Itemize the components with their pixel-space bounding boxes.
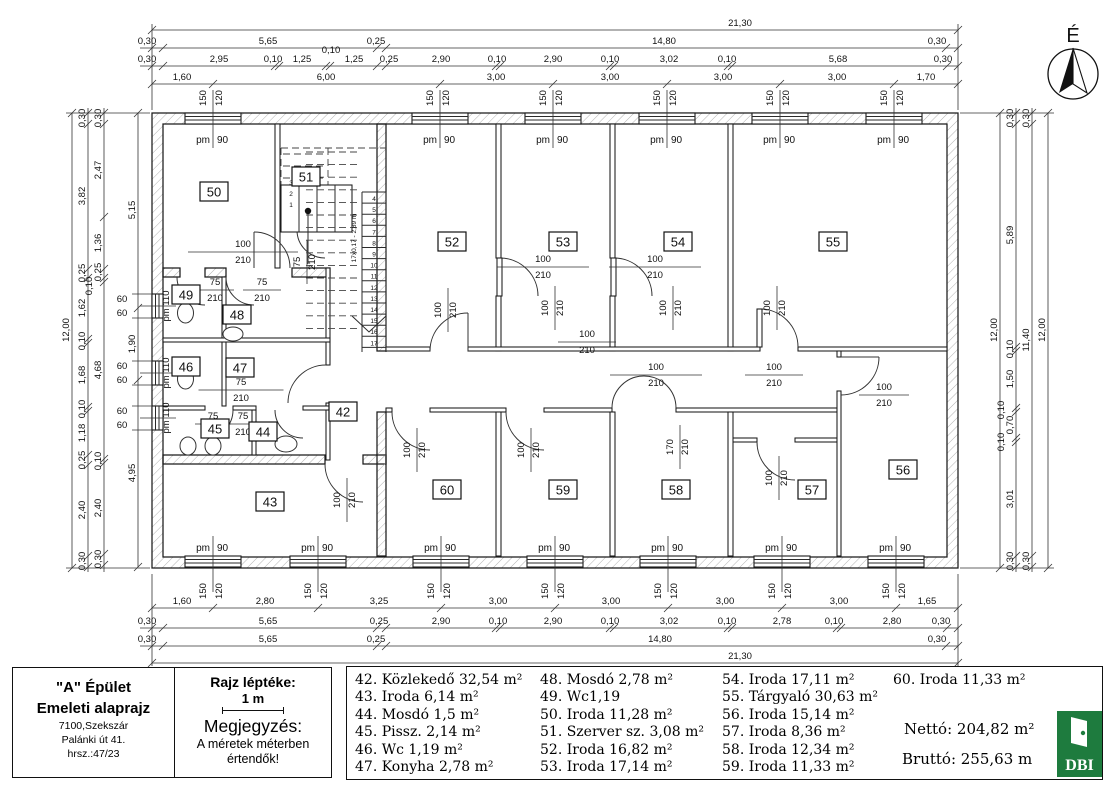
window-spec: 150 xyxy=(540,583,551,599)
dim-label: 0,10 xyxy=(996,433,1007,452)
door-width-label: 100 xyxy=(332,492,343,508)
dim-label: 2,40 xyxy=(77,501,88,520)
door-height-label: 210 xyxy=(647,270,663,281)
dim-label: 4,68 xyxy=(93,361,104,380)
window-sill-label: pm xyxy=(424,543,438,554)
window-sill-label: pm xyxy=(423,135,437,146)
door-width-label: 100 xyxy=(579,329,595,340)
dim-label: 4,95 xyxy=(127,464,138,483)
note-line1: A méretek méterben xyxy=(175,737,331,752)
dim-label: 0,30 xyxy=(932,616,951,627)
legend-item: 50. Iroda 11,28 m² xyxy=(540,707,704,724)
dim-label: 6,00 xyxy=(317,72,336,83)
legend-item: 56. Iroda 15,14 m² xyxy=(722,707,878,724)
window-spec: 120 xyxy=(668,90,679,106)
stair-step-number: 8 xyxy=(372,240,376,247)
window-spec: 120 xyxy=(669,583,680,599)
legend-item: 44. Mosdó 1,5 m² xyxy=(355,707,522,724)
sink xyxy=(275,436,297,452)
dim-label: 0,10 xyxy=(601,54,620,65)
stair-start-dot xyxy=(305,208,311,214)
window-sill-label: 90 xyxy=(217,135,229,146)
dim-label: 0,25 xyxy=(380,54,399,65)
legend-item: 42. Közlekedő 32,54 m² xyxy=(355,672,522,689)
drawing-name: Emeleti alaprajz xyxy=(13,698,174,719)
toilet-bowl xyxy=(178,303,194,323)
dim-label: 11,40 xyxy=(1021,328,1032,351)
dim-label: 1,65 xyxy=(918,596,937,607)
window-spec: 150 xyxy=(881,583,892,599)
dim-label: 3,02 xyxy=(660,616,679,627)
dim-label: 12,00 xyxy=(989,318,1000,342)
window-sill-label: 90 xyxy=(671,135,683,146)
gross-area: Bruttó: 255,63 m xyxy=(902,750,1032,768)
dim-label: 0,30 xyxy=(138,36,157,47)
dim-label: 2,90 xyxy=(544,616,563,627)
window-sill-label: 90 xyxy=(559,543,571,554)
sink xyxy=(223,327,243,341)
door-height-label: 210 xyxy=(777,300,788,316)
address-street: Palánki út 41. xyxy=(13,733,174,747)
dim-label: 12,00 xyxy=(1037,318,1048,342)
window-spec: 150 xyxy=(425,90,436,106)
dim-label: 0,10 xyxy=(322,45,341,56)
dim-label: 0,25 xyxy=(367,634,386,645)
door-width-label: 75 xyxy=(292,257,303,268)
room-number-53: 53 xyxy=(556,235,570,250)
dim-label: 0,30 xyxy=(77,552,88,571)
dim-label: 0,30 xyxy=(138,616,157,627)
legend-item: 52. Iroda 16,82 m² xyxy=(540,742,704,759)
dim-label: 2,90 xyxy=(544,54,563,65)
stair-step-number: 14 xyxy=(370,307,378,314)
dim-label: 0,10 xyxy=(77,332,88,351)
dim-label: 2,80 xyxy=(256,596,275,607)
parcel-number: hrsz.:47/23 xyxy=(13,747,174,761)
door-width-label: 100 xyxy=(764,470,775,486)
dbi-logo: DBI xyxy=(1057,711,1102,777)
room-number-56: 56 xyxy=(896,463,910,478)
address-city: 7100,Szekszár xyxy=(13,719,174,733)
window-sill-label: pm xyxy=(651,543,665,554)
door-width-label: 100 xyxy=(658,300,669,316)
door-height-label: 210 xyxy=(531,442,542,458)
dim-label: 0,10 xyxy=(264,54,283,65)
stair-step-number: 13 xyxy=(370,296,378,303)
door-height-label: 210 xyxy=(448,302,459,318)
dim-label: 0,30 xyxy=(1005,552,1016,571)
window-spec: 120 xyxy=(895,90,906,106)
window-sill-label: pm xyxy=(879,543,893,554)
door-width-label: 100 xyxy=(516,442,527,458)
window-sill-label: pm xyxy=(301,543,315,554)
legend-item: 45. Pissz. 2,14 m² xyxy=(355,724,522,741)
dim-label: 2,40 xyxy=(93,499,104,518)
window-sill-label: 90 xyxy=(445,543,457,554)
dim-label: 0,30 xyxy=(1021,552,1032,571)
window-spec: 150 xyxy=(198,90,209,106)
room-number-44: 44 xyxy=(256,425,270,440)
room-number-43: 43 xyxy=(263,495,277,510)
door-width-label: 170 xyxy=(665,439,676,455)
stair-step-number: 17 xyxy=(370,340,378,347)
room-number-51: 51 xyxy=(299,170,313,185)
legend-item: 59. Iroda 11,33 m² xyxy=(722,759,878,776)
stair-note: 17x0,17 - 2,89 m xyxy=(351,214,358,263)
stair-step-number: 10 xyxy=(370,263,378,270)
dim-label: 0,30 xyxy=(93,550,104,569)
door-width-label: 75 xyxy=(210,277,221,288)
dim-label: 0,30 xyxy=(928,36,947,47)
window-spec: 120 xyxy=(781,90,792,106)
room-number-46: 46 xyxy=(179,360,193,375)
legend-item: 49. Wc1,19 xyxy=(540,689,704,706)
dim-label: 5,68 xyxy=(829,54,848,65)
room-number-50: 50 xyxy=(207,185,221,200)
dim-label: 2,90 xyxy=(432,54,451,65)
window-spec: 150 xyxy=(652,90,663,106)
door-height-label: 210 xyxy=(417,442,428,458)
dim-label: 5,65 xyxy=(259,616,278,627)
window-spec: 120 xyxy=(783,583,794,599)
dim-label: 0,10 xyxy=(718,616,737,627)
window-sill-label: pm xyxy=(765,543,779,554)
legend-column-3: 54. Iroda 17,11 m²55. Tárgyaló 30,63 m²5… xyxy=(722,672,878,776)
building-name: "A" Épület xyxy=(13,677,174,698)
dim-label: 1,68 xyxy=(77,366,88,385)
dim-label: 1,25 xyxy=(293,54,312,65)
dim-label: 1,62 xyxy=(77,299,88,318)
door-height-label: 210 xyxy=(307,254,318,270)
dim-label: 1,50 xyxy=(1005,370,1016,389)
dim-label: 5,65 xyxy=(259,36,278,47)
dim-label: 0,10 xyxy=(489,616,508,627)
dim-label: 3,00 xyxy=(602,596,621,607)
dim-label: 3,00 xyxy=(487,72,506,83)
legend-item: 55. Tárgyaló 30,63 m² xyxy=(722,689,878,706)
dim-label: 14,80 xyxy=(652,36,676,47)
dim-label: 1,60 xyxy=(173,596,192,607)
dim-label: 3,25 xyxy=(370,596,389,607)
stair-step-number: 4 xyxy=(372,196,376,203)
window-spec: 150 xyxy=(765,90,776,106)
urinal xyxy=(205,437,221,455)
dim-label: 0,10 xyxy=(93,452,104,471)
window-spec: 150 xyxy=(426,583,437,599)
door-height-label: 210 xyxy=(235,255,251,266)
title-block-project: "A" Épület Emeleti alaprajz 7100,Szekszá… xyxy=(13,668,175,777)
stair-step-number: 6 xyxy=(372,218,376,225)
window-sill-label: pm 110 xyxy=(161,291,172,322)
window-sill-label: 90 xyxy=(444,135,456,146)
window-sill-label: pm xyxy=(877,135,891,146)
legend-item: 47. Konyha 2,78 m² xyxy=(355,759,522,776)
room-number-58: 58 xyxy=(669,483,683,498)
dim-label: 5,15 xyxy=(127,201,138,220)
legend-item: 53. Iroda 17,14 m² xyxy=(540,759,704,776)
door-width-label: 75 xyxy=(238,411,249,422)
window-sill-label: pm xyxy=(538,543,552,554)
window-spec: 150 xyxy=(879,90,890,106)
stair-step-number: 9 xyxy=(372,252,376,259)
window-width-label: 60 xyxy=(117,294,128,305)
legend-column-1: 42. Közlekedő 32,54 m²43. Iroda 6,14 m²4… xyxy=(355,672,522,776)
dbi-logo-text: DBI xyxy=(1057,757,1102,775)
door-width-label: 100 xyxy=(402,442,413,458)
north-label: É xyxy=(1066,24,1079,47)
window-sill-label: pm xyxy=(650,135,664,146)
stair-step-number: 2 xyxy=(289,191,293,198)
urinal xyxy=(180,437,196,455)
dim-label: 0,25 xyxy=(370,616,389,627)
room-number-42: 42 xyxy=(336,405,350,420)
door-height-label: 210 xyxy=(555,300,566,316)
door-height-label: 210 xyxy=(254,293,270,304)
dim-label: 3,00 xyxy=(828,72,847,83)
window-sill-label: 90 xyxy=(900,543,912,554)
room-number-45: 45 xyxy=(208,422,222,437)
dim-label: 0,30 xyxy=(138,54,157,65)
note-title: Megjegyzés: xyxy=(175,716,331,737)
stair-step-number: 12 xyxy=(370,285,378,292)
dim-label: 2,90 xyxy=(432,616,451,627)
dim-label: 2,80 xyxy=(883,616,902,627)
legend-column-4: 60. Iroda 11,33 m² xyxy=(893,672,1026,689)
dim-label: 5,89 xyxy=(1005,226,1016,245)
window-width-label: 60 xyxy=(117,420,128,431)
room-number-54: 54 xyxy=(671,235,685,250)
window-sill-label: pm xyxy=(196,543,210,554)
dim-label: 1,90 xyxy=(127,335,138,354)
door-width-label: 100 xyxy=(766,362,782,373)
window-spec: 120 xyxy=(214,90,225,106)
stair-step-number: 5 xyxy=(372,207,376,214)
window-sill-label: 90 xyxy=(784,135,796,146)
scale-bar xyxy=(222,707,284,714)
dim-label: 1,18 xyxy=(77,424,88,443)
window-width-label: 60 xyxy=(117,308,128,319)
dim-label: 0,25 xyxy=(77,451,88,470)
legend-item: 51. Szerver sz. 3,08 m² xyxy=(540,724,704,741)
title-block-scale: Rajz léptéke: 1 m Megjegyzés: A méretek … xyxy=(175,668,331,777)
door-width-label: 100 xyxy=(433,302,444,318)
window-spec: 150 xyxy=(538,90,549,106)
window-spec: 120 xyxy=(442,583,453,599)
door-width-label: 75 xyxy=(236,377,247,388)
dim-label: 1,70 xyxy=(917,72,936,83)
dim-label: 0,25 xyxy=(367,36,386,47)
door-height-label: 210 xyxy=(876,398,892,409)
north-compass: É xyxy=(1048,24,1098,99)
dim-label: 0,10 xyxy=(601,616,620,627)
window-spec: 120 xyxy=(214,583,225,599)
dim-label: 0,30 xyxy=(77,109,88,128)
dim-label: 0,10 xyxy=(488,54,507,65)
dim-label: 0,30 xyxy=(1021,109,1032,128)
door-height-label: 210 xyxy=(535,270,551,281)
dim-label: 0,30 xyxy=(928,634,947,645)
door-width-label: 100 xyxy=(540,300,551,316)
window-sill-label: 90 xyxy=(557,135,569,146)
scale-value: 1 m xyxy=(175,691,331,706)
window-sill-label: pm xyxy=(196,135,210,146)
dim-label: 0,70 xyxy=(1005,416,1016,435)
window-spec: 150 xyxy=(653,583,664,599)
window-sill-label: pm 110 xyxy=(161,403,172,434)
stair-step-number: 7 xyxy=(372,229,376,236)
room-number-52: 52 xyxy=(445,235,459,250)
dim-label: 1,36 xyxy=(93,234,104,253)
dim-label: 3,00 xyxy=(601,72,620,83)
window-sill-label: 90 xyxy=(898,135,910,146)
window-spec: 150 xyxy=(198,583,209,599)
dim-label: 3,02 xyxy=(660,54,679,65)
window-sill-label: pm xyxy=(763,135,777,146)
window-width-label: 60 xyxy=(117,406,128,417)
net-area: Nettó: 204,82 m² xyxy=(904,720,1034,738)
door-height-label: 210 xyxy=(779,470,790,486)
door-width-label: 75 xyxy=(257,277,268,288)
dim-label: 0,30 xyxy=(93,109,104,128)
legend-item: 54. Iroda 17,11 m² xyxy=(722,672,878,689)
door-width-label: 100 xyxy=(876,382,892,393)
door-width-label: 100 xyxy=(647,254,663,265)
room-legend: 42. Közlekedő 32,54 m²43. Iroda 6,14 m²4… xyxy=(346,666,1103,780)
legend-item: 43. Iroda 6,14 m² xyxy=(355,689,522,706)
window-sill-label: pm 110 xyxy=(161,358,172,389)
dim-label: 0,30 xyxy=(138,634,157,645)
room-number-55: 55 xyxy=(826,235,840,250)
dim-label: 0,10 xyxy=(84,277,95,296)
room-number-60: 60 xyxy=(440,483,454,498)
room-number-48: 48 xyxy=(230,308,244,323)
dim-label: 3,00 xyxy=(716,596,735,607)
legend-item: 48. Mosdó 2,78 m² xyxy=(540,672,704,689)
legend-item: 58. Iroda 12,34 m² xyxy=(722,742,878,759)
dim-label: 14,80 xyxy=(648,634,672,645)
title-block: "A" Épület Emeleti alaprajz 7100,Szekszá… xyxy=(12,667,332,778)
dim-label: 3,00 xyxy=(489,596,508,607)
dim-label: 0,10 xyxy=(825,616,844,627)
door-height-label: 210 xyxy=(648,378,664,389)
dim-label: 2,95 xyxy=(210,54,229,65)
floor-plan-page: É 21,300,305,650,2514,800,300,302,950,10… xyxy=(0,0,1111,786)
dim-label: 2,78 xyxy=(773,616,792,627)
window-spec: 120 xyxy=(319,583,330,599)
dim-label: 21,30 xyxy=(728,18,752,29)
room-number-59: 59 xyxy=(556,483,570,498)
door-height-label: 210 xyxy=(680,439,691,455)
compass-needle-light xyxy=(1073,48,1087,93)
dim-label: 2,47 xyxy=(93,161,104,180)
window-spec: 150 xyxy=(767,583,778,599)
window-sill-label: 90 xyxy=(322,543,334,554)
window-sill-label: 90 xyxy=(217,543,229,554)
dim-label: 3,00 xyxy=(830,596,849,607)
stair-step-number: 11 xyxy=(371,274,378,281)
dim-label: 5,65 xyxy=(259,634,278,645)
door-height-label: 210 xyxy=(766,378,782,389)
dim-label: 3,00 xyxy=(714,72,733,83)
room-number-47: 47 xyxy=(233,361,247,376)
dim-label: 0,10 xyxy=(718,54,737,65)
room-number-57: 57 xyxy=(805,483,819,498)
door-width-label: 100 xyxy=(535,254,551,265)
window-spec: 120 xyxy=(554,90,565,106)
dim-label: 1,25 xyxy=(345,54,364,65)
dim-label: 0,10 xyxy=(1005,340,1016,359)
stair-step-number: 16 xyxy=(370,329,378,336)
window-sill-label: 90 xyxy=(672,543,684,554)
note-line2: értendők! xyxy=(175,752,331,767)
legend-item: 57. Iroda 8,36 m² xyxy=(722,724,878,741)
dim-label: 0,30 xyxy=(1005,109,1016,128)
room-number-49: 49 xyxy=(179,288,193,303)
dim-label: 0,10 xyxy=(77,400,88,419)
dim-label: 3,82 xyxy=(77,187,88,206)
dim-label: 1,60 xyxy=(173,72,192,83)
stair-step-number: 15 xyxy=(370,318,378,325)
compass-needle-dark xyxy=(1059,48,1073,93)
legend-item: 60. Iroda 11,33 m² xyxy=(893,672,1026,689)
window-sill-label: pm xyxy=(536,135,550,146)
window-spec: 120 xyxy=(441,90,452,106)
door-width-label: 100 xyxy=(648,362,664,373)
door-height-label: 210 xyxy=(579,345,595,356)
window-sill-label: 90 xyxy=(786,543,798,554)
dim-label: 21,30 xyxy=(728,651,752,662)
door-height-label: 210 xyxy=(233,393,249,404)
window-width-label: 60 xyxy=(117,361,128,372)
stair-step-number: 1 xyxy=(289,202,293,209)
legend-column-2: 48. Mosdó 2,78 m²49. Wc1,1950. Iroda 11,… xyxy=(540,672,704,776)
door-width-label: 100 xyxy=(762,300,773,316)
dim-label: 12,00 xyxy=(61,318,72,342)
window-spec: 120 xyxy=(556,583,567,599)
dim-label: 0,30 xyxy=(934,54,953,65)
window-width-label: 60 xyxy=(117,375,128,386)
window-spec: 150 xyxy=(303,583,314,599)
dim-label: 3,01 xyxy=(1005,490,1016,509)
door-width-label: 100 xyxy=(235,239,251,250)
door-height-label: 210 xyxy=(347,492,358,508)
door-height-label: 210 xyxy=(207,293,223,304)
legend-item: 46. Wc 1,19 m² xyxy=(355,742,522,759)
scale-title: Rajz léptéke: xyxy=(175,673,331,691)
window-spec: 120 xyxy=(897,583,908,599)
door-height-label: 210 xyxy=(673,300,684,316)
